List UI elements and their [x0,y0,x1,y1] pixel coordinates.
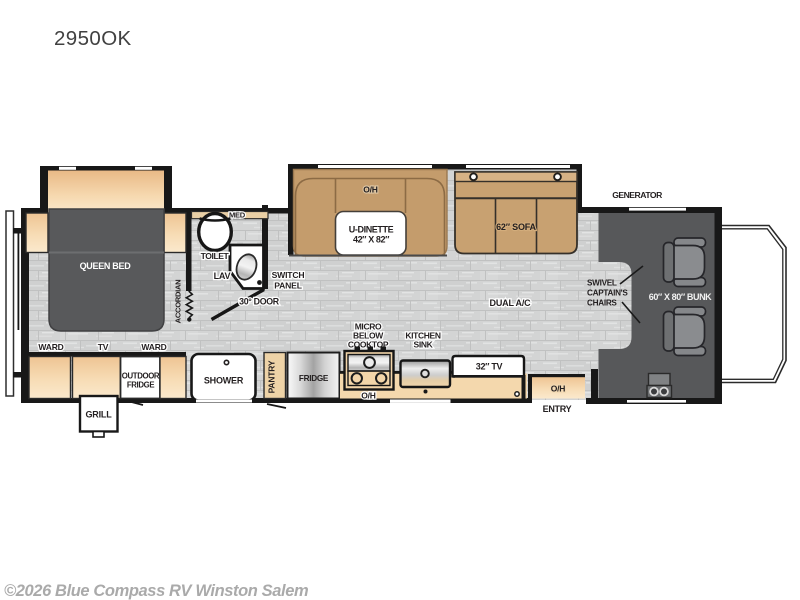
svg-text:SINK: SINK [414,340,434,350]
svg-text:DUAL A/C: DUAL A/C [490,298,532,308]
svg-text:OUTDOOR: OUTDOOR [122,372,160,381]
svg-text:MED: MED [229,211,246,220]
svg-text:SWITCH: SWITCH [272,270,305,280]
svg-text:60″ X 80″ BUNK: 60″ X 80″ BUNK [649,292,712,302]
svg-text:CAPTAIN'S: CAPTAIN'S [587,289,628,298]
svg-text:32″ TV: 32″ TV [476,362,503,372]
svg-text:O/H: O/H [551,384,566,394]
svg-text:42″ X 82″: 42″ X 82″ [353,235,390,245]
svg-text:SHOWER: SHOWER [204,376,244,386]
svg-text:WARD: WARD [141,342,166,352]
svg-text:30° DOOR: 30° DOOR [239,297,280,307]
svg-text:ACCORDIAN: ACCORDIAN [174,280,183,324]
svg-text:PANTRY: PANTRY [267,360,277,393]
svg-text:ENTRY: ENTRY [543,404,572,414]
svg-text:WARD: WARD [38,342,63,352]
svg-text:SWIVEL: SWIVEL [587,279,617,288]
svg-text:FRIDGE: FRIDGE [299,374,329,383]
svg-text:FRIDGE: FRIDGE [127,381,155,390]
svg-text:GRILL: GRILL [86,410,113,420]
svg-text:O/H: O/H [363,185,378,195]
svg-text:CHAIRS: CHAIRS [587,299,617,308]
svg-text:©2026 Blue Compass RV Winston: ©2026 Blue Compass RV Winston Salem [4,582,308,600]
svg-text:O/H: O/H [361,391,376,401]
svg-text:LAV: LAV [214,271,231,281]
svg-text:TOILET: TOILET [201,251,230,261]
svg-text:GENERATOR: GENERATOR [612,190,663,200]
svg-text:TV: TV [98,342,109,352]
svg-text:PANEL: PANEL [274,281,302,291]
svg-text:2950OK: 2950OK [54,27,132,50]
svg-text:62″ SOFA: 62″ SOFA [496,222,536,232]
svg-text:QUEEN BED: QUEEN BED [80,261,132,271]
svg-text:U-DINETTE: U-DINETTE [349,225,394,235]
